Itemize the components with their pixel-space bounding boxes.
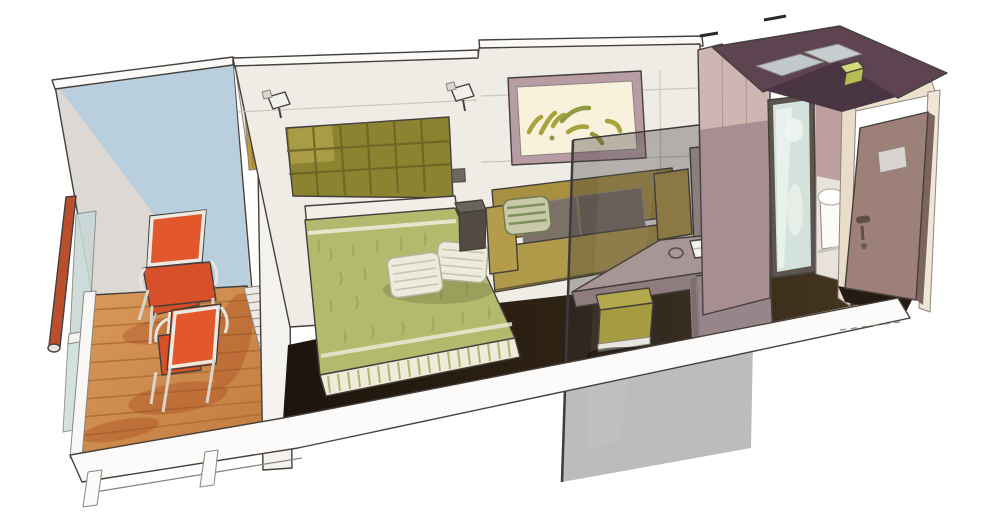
cabin-cutaway-svg [0,0,1000,512]
wall-switch [452,169,466,183]
roof-brackets [700,16,786,36]
railing-cap [48,344,60,352]
cabin-entry-door [845,112,935,305]
cabin-illustration [0,0,1000,512]
striped-throw-pillow [502,196,551,236]
glass-bathroom-door [768,95,816,278]
bathroom-wall-lower-tint [698,120,770,315]
bathroom-block [698,16,947,315]
tufted-headboard [286,117,453,198]
nightstand [455,200,486,251]
